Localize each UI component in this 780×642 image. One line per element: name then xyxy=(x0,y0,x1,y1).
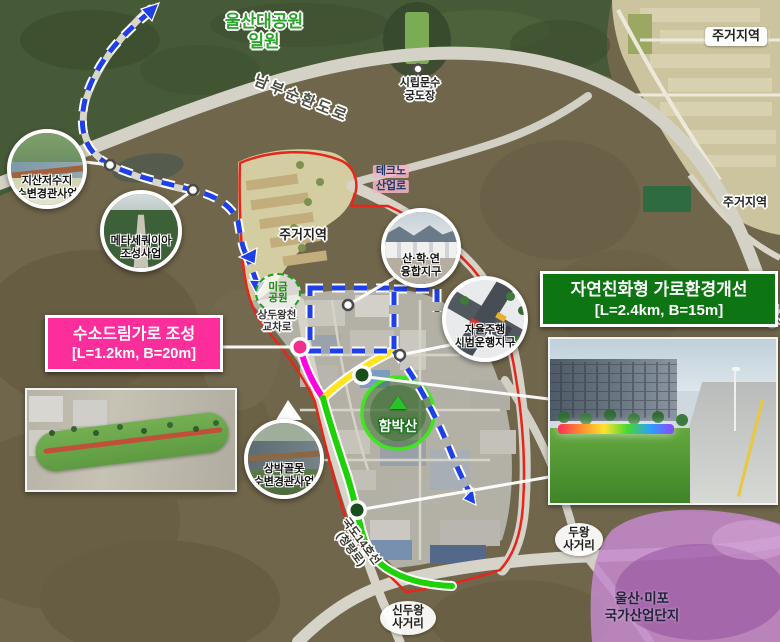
eco-street-rendering xyxy=(548,337,778,505)
hydrogen-street-rendering xyxy=(25,388,237,492)
project-circle-jisan: 지산저수지 수변경관사업 xyxy=(7,129,87,209)
project-circle-jisan-label: 지산저수지 수변경관사업 xyxy=(11,175,83,201)
rainbow-light-garden xyxy=(558,424,674,434)
project-circle-autonomous-label: 자율주행 시범운행지구 xyxy=(446,324,524,350)
project-circle-sanhakyeon-label: 산·학·연 융합지구 xyxy=(385,253,457,279)
label-ulsan-grand-park: 울산대공원 일원 xyxy=(225,12,303,51)
label-residential-northeast: 주거지역 xyxy=(705,27,767,46)
tennis-courts xyxy=(643,186,691,212)
label-residential-center: 주거지역 xyxy=(279,228,327,243)
callout-hydrogen-street: 수소드림가로 조성 [L=1.2km, B=20m] xyxy=(45,315,223,372)
label-sinduwang-crossing: 신두왕 사거리 xyxy=(380,601,436,635)
map-canvas: 울산대공원 일원 시립문수 궁도장 남부순환도로 남부순환도로 주거지역 주거지… xyxy=(0,0,780,642)
project-circle-metasequoia: 메타세쿼이아 조성사업 xyxy=(100,190,182,272)
label-industrial-complex: 울산·미포 국가산업단지 xyxy=(605,590,680,624)
project-circle-sangbakgol: 상박골못 수변경관사업 xyxy=(244,419,324,499)
label-migeum-park: 미금 공원 xyxy=(255,273,301,313)
label-archery-range: 시립문수 궁도장 xyxy=(400,77,440,102)
mountain-peak-icon xyxy=(389,396,407,409)
callout-hydrogen-title: 수소드림가로 조성 xyxy=(48,324,220,345)
label-hambaksan: 함박산 xyxy=(379,416,418,436)
label-residential-east: 주거지역 xyxy=(723,196,767,210)
callout-hydrogen-spec: [L=1.2km, B=20m] xyxy=(48,345,220,363)
project-circle-sangbakgol-label: 상박골못 수변경관사업 xyxy=(248,463,320,489)
label-sangduwang-crossing: 상두왕천 교차로 xyxy=(258,309,297,333)
callout-eco-street: 자연친화형 가로환경개선 [L=2.4km, B=15m] xyxy=(540,271,778,327)
label-techno-industrial-road: 테크노 산업로 xyxy=(373,165,409,193)
callout-eco-title: 자연친화형 가로환경개선 xyxy=(543,279,775,301)
label-duwang-crossing: 두왕 사거리 xyxy=(555,523,603,556)
callout-eco-spec: [L=2.4km, B=15m] xyxy=(543,301,775,320)
project-circle-metasequoia-label: 메타세쿼이아 조성사업 xyxy=(104,235,178,261)
project-circle-sanhakyeon: 산·학·연 융합지구 xyxy=(381,208,461,288)
project-circle-autonomous: 자율주행 시범운행지구 xyxy=(442,276,528,362)
